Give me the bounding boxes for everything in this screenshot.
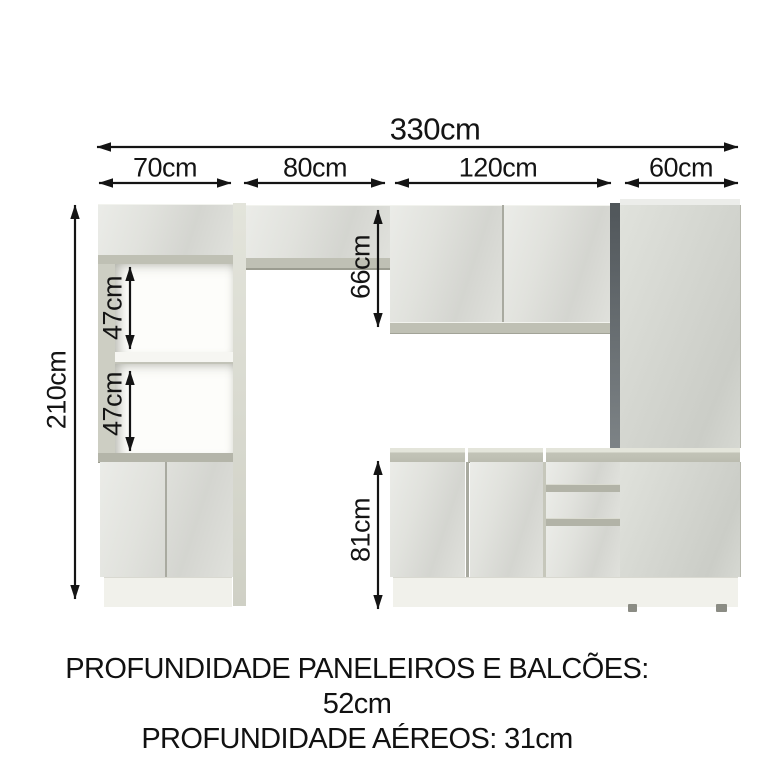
depth-note-line2: PROFUNDIDADE AÉREOS: 31cm <box>37 722 677 757</box>
kitchen-dimension-diagram: 330cm 70cm 80cm 120cm 60cm 210cm 47cm 47… <box>0 0 780 780</box>
dim-section3-label: 120cm <box>459 155 538 182</box>
dim-upper-height-label: 66cm <box>348 235 375 299</box>
dim-niche-upper-label: 47cm <box>100 276 127 340</box>
dim-total-width-label: 330cm <box>390 114 481 145</box>
depth-note-line1: PROFUNDIDADE PANELEIROS E BALCÕES: 52cm <box>37 652 677 722</box>
dim-base-height-label: 81cm <box>348 498 375 562</box>
dim-total-height-label: 210cm <box>44 351 71 430</box>
dim-section4-label: 60cm <box>649 155 713 182</box>
dim-section2-label: 80cm <box>283 155 347 182</box>
dim-niche-lower-label: 47cm <box>100 372 127 436</box>
depth-note: PROFUNDIDADE PANELEIROS E BALCÕES: 52cm … <box>37 652 677 757</box>
dim-section1-label: 70cm <box>133 155 197 182</box>
